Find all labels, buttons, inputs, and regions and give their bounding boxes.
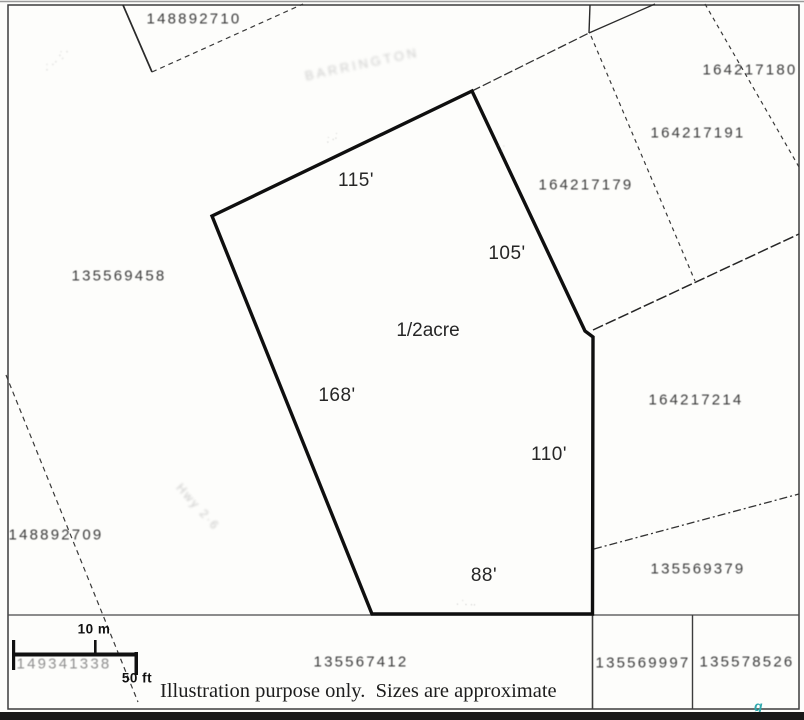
parcel-label-135569379: 135569379 (651, 561, 746, 578)
scale-bar-left-tick (12, 640, 15, 670)
dimension-label-right: 110' (531, 444, 567, 466)
parcel-label-148892710: 148892710 (147, 11, 242, 28)
map-border (8, 5, 799, 709)
scale-imperial-label: 50 ft (122, 671, 152, 686)
parcel-label-164217179: 164217179 (539, 177, 634, 194)
plat-map: 148892710 164217180 164217191 164217179 … (0, 0, 804, 720)
map-line-work (0, 0, 804, 720)
parcel-label-135569458: 135569458 (72, 268, 167, 285)
scale-metric-label: 10 m (78, 622, 111, 637)
faint-speckle: · ˙· ·· (456, 599, 476, 610)
parcel-label-135578526: 135578526 (700, 654, 795, 671)
area-label: 1/2acre (396, 320, 459, 342)
parcel-label-135567412: 135567412 (314, 654, 409, 671)
parcel-label-164217180: 164217180 (703, 62, 798, 79)
parcel-label-164217191: 164217191 (651, 125, 746, 142)
scale-bar-mid-tick (94, 640, 97, 654)
parcel-label-164217214: 164217214 (649, 392, 744, 409)
parcel-boundary-stub (589, 5, 590, 33)
boundary-179-191 (591, 36, 695, 281)
scan-bottom-bar (0, 712, 804, 720)
parcel-label-149341338: 149341338 (17, 656, 112, 673)
disclaimer-text: Illustration purpose only. Sizes are app… (160, 680, 557, 703)
dimension-label-bottom: 88' (471, 565, 497, 587)
boundary-214-379 (594, 494, 799, 549)
dimension-label-left: 168' (318, 385, 355, 407)
boundary-191-180 (705, 4, 799, 167)
dimension-label-top: 115' (338, 170, 374, 192)
dimension-label-upper-right: 105' (488, 243, 525, 265)
parcel-label-148892709: 148892709 (9, 527, 104, 544)
boundary-214-north (593, 234, 799, 330)
subject-parcel-outline (212, 91, 593, 614)
parcel-boundary-solid-2 (589, 4, 655, 33)
parcel-label-135569997: 135569997 (596, 655, 691, 672)
parcel-boundary-dashdot (472, 33, 589, 91)
